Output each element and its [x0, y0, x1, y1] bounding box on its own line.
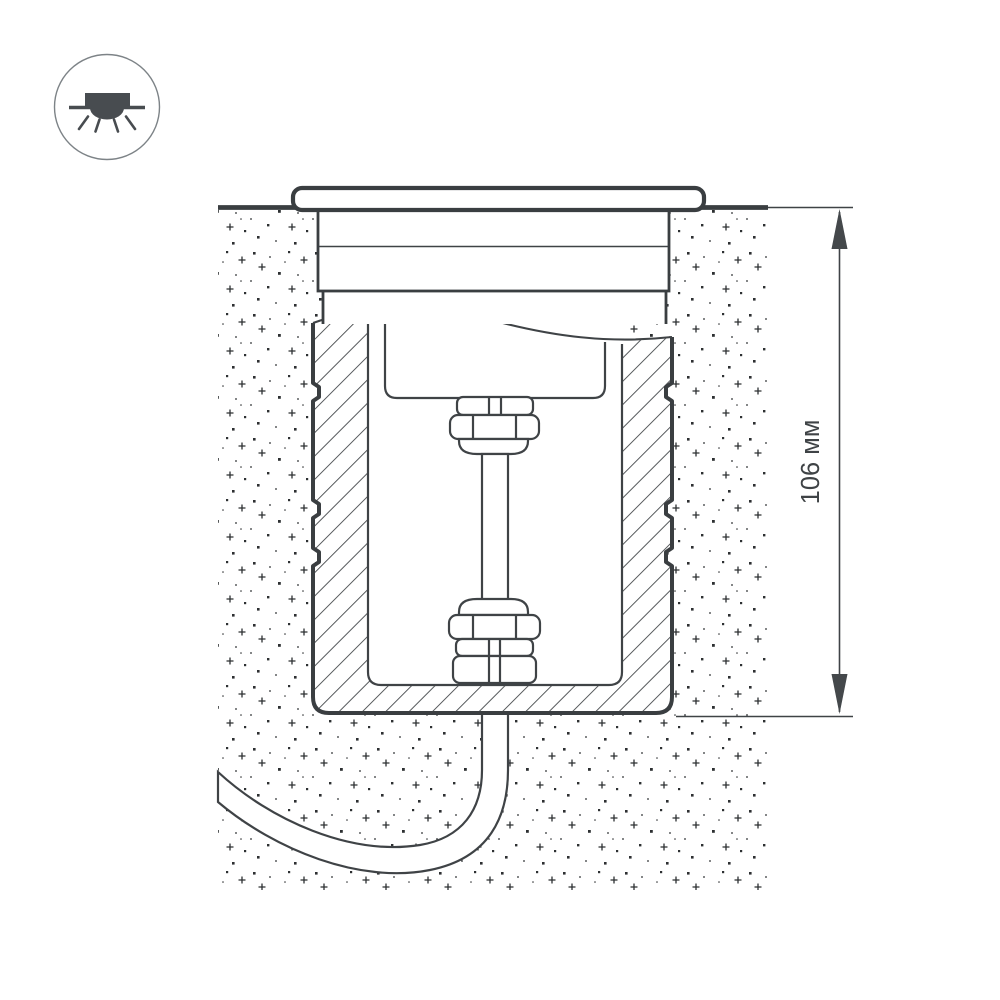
upper-sleeve — [318, 210, 669, 324]
gland-top-ring — [457, 397, 533, 415]
dimension-arrow-up — [832, 209, 848, 249]
gland-bottom-ring — [456, 639, 533, 656]
cable-gland-top — [450, 397, 539, 454]
diagram-svg: 106 мм — [0, 0, 1000, 1000]
conduit-stem — [482, 454, 508, 600]
gland-bottom-collar — [459, 599, 528, 615]
icon-fixture-body — [85, 93, 130, 107]
gland-bottom-nut — [449, 615, 540, 639]
gland-bottom-base — [453, 656, 536, 683]
recessed-downlight-icon — [55, 55, 160, 160]
sleeve-upper-band — [318, 210, 669, 291]
gland-top-collar — [459, 439, 528, 454]
dimension-label: 106 мм — [797, 420, 825, 505]
trim-flange — [293, 188, 704, 210]
cable-gland-bottom — [449, 599, 540, 683]
sleeve-lower-band — [322, 291, 667, 324]
dimension-arrow-down — [832, 674, 848, 714]
installation-diagram: 106 мм — [0, 0, 1000, 1000]
gland-top-nut — [450, 415, 539, 439]
